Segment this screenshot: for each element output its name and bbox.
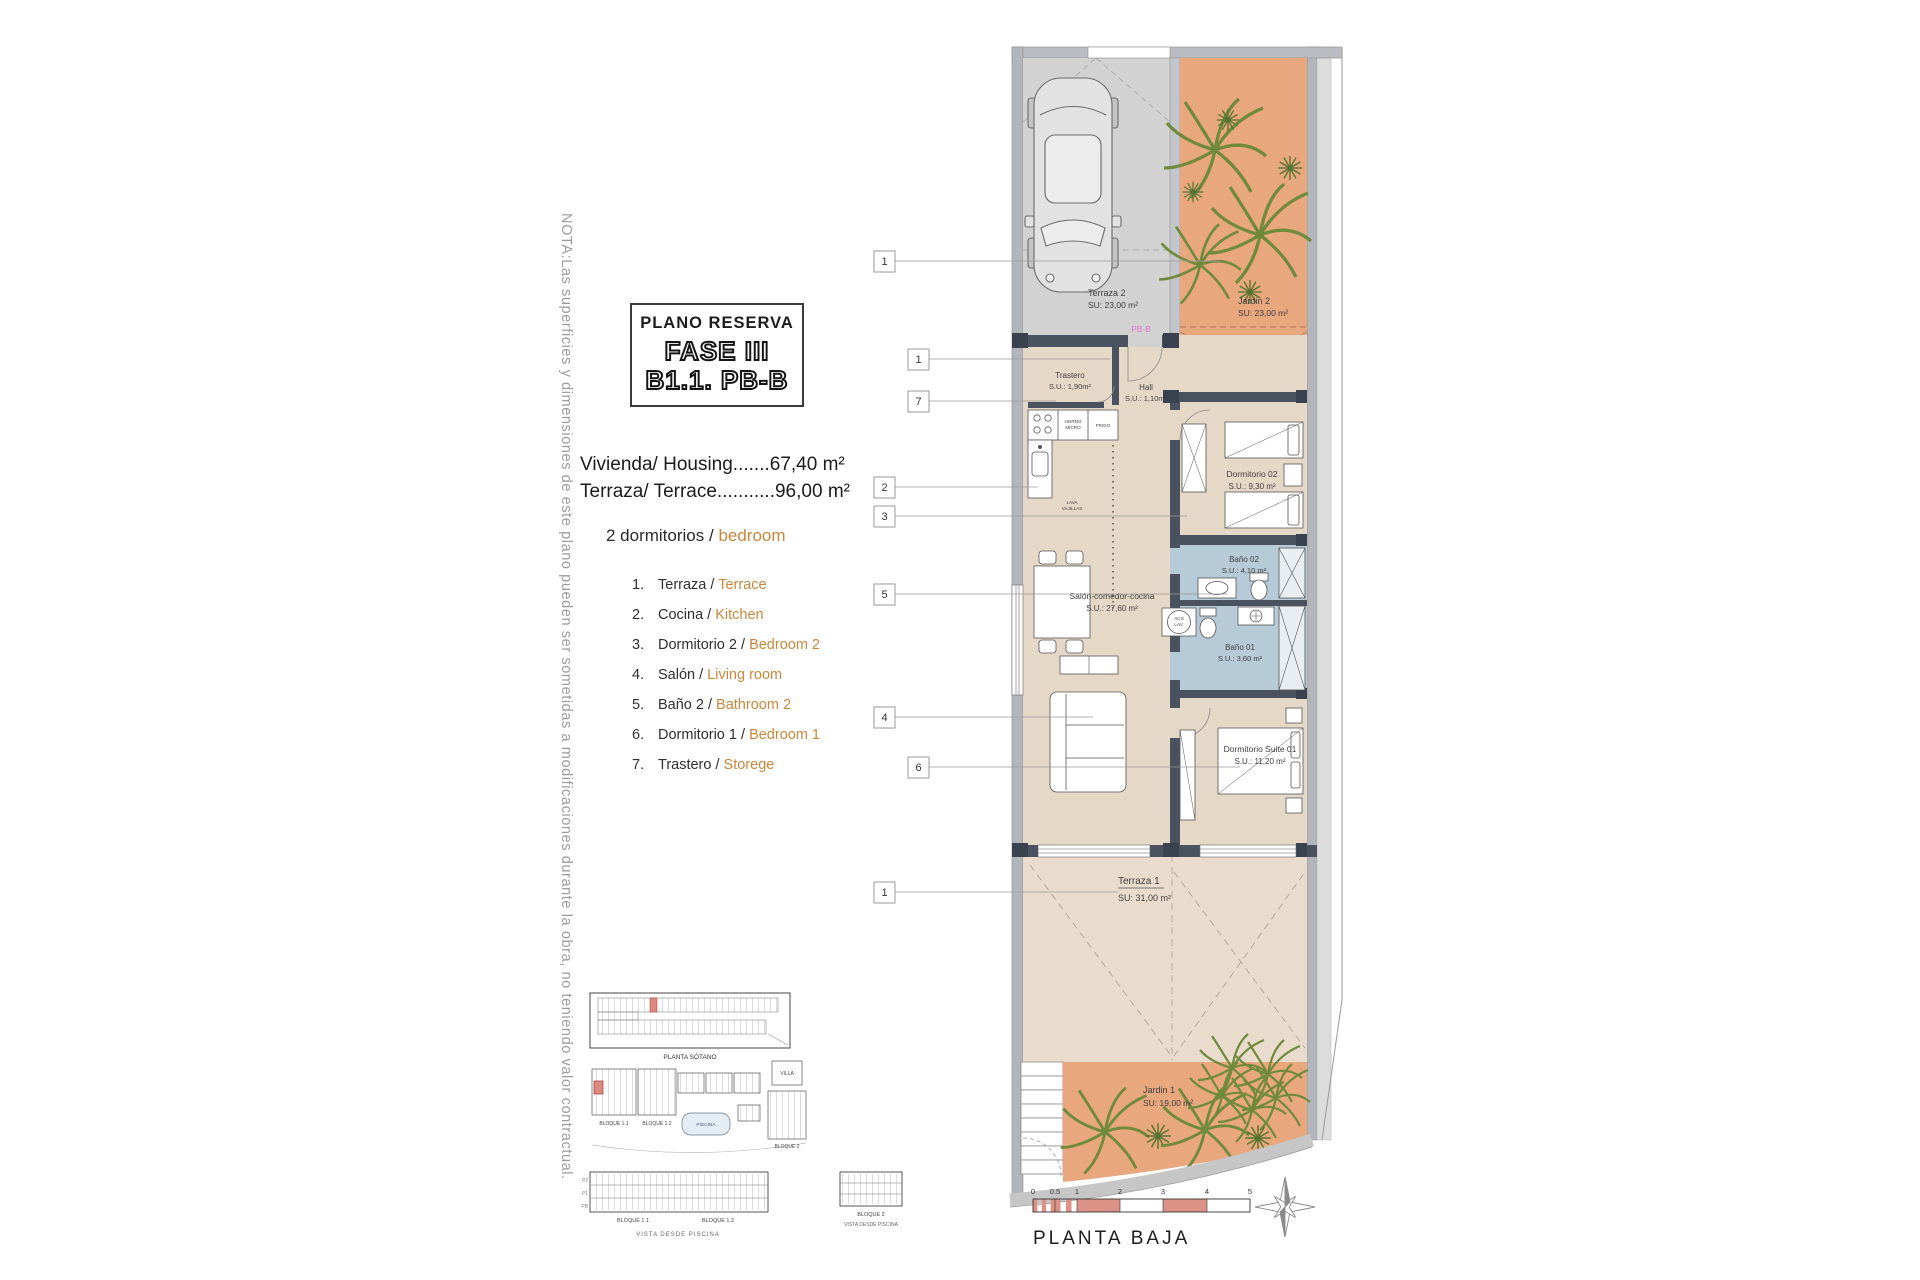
site-plan-diagram: VILLA PISCINA BLOQUE 1.1 BLOQUE 1.2 BLOQ… xyxy=(592,1061,806,1153)
legend-num: 4. xyxy=(632,660,658,690)
legend-es: Salón / xyxy=(658,667,707,683)
legend-en: Terrace xyxy=(718,577,766,593)
legend-en: Kitchen xyxy=(715,607,763,623)
salon-area: S.U.: 27,60 m² xyxy=(1086,604,1138,613)
scale-tick: 2 xyxy=(1118,1187,1122,1196)
scale-tick: 4 xyxy=(1205,1187,1209,1196)
bloque2-caption: BLOQUE 2 xyxy=(857,1212,885,1218)
elevation-right: BLOQUE 2 VISTA DESDE PISCINA xyxy=(840,1172,902,1228)
top-wall xyxy=(1012,47,1342,58)
terraza2-area: SU: 23,00 m² xyxy=(1088,300,1138,310)
tv-cabinet xyxy=(1060,656,1118,674)
bano02-label: Baño 02 xyxy=(1229,555,1259,564)
callout-4: 4 xyxy=(881,712,887,724)
site-diagrams: PLANTA SÓTANO VILLA PISCINA BLOQUE 1.1 B… xyxy=(578,985,922,1270)
right-wall xyxy=(1307,47,1317,1140)
callout-6: 6 xyxy=(915,762,921,774)
suite-area: S.U.: 11,20 m² xyxy=(1235,757,1286,766)
highlighted-unit xyxy=(594,1081,603,1094)
jardin1-label: Jardin 1 xyxy=(1143,1085,1175,1095)
legend-es: Baño 2 / xyxy=(658,697,716,713)
bedrooms-line: 2 dormitorios / bedroom xyxy=(606,526,786,546)
scale-tick: 5 xyxy=(1248,1187,1252,1196)
scale-tick: 1 xyxy=(1075,1187,1079,1196)
car-icon xyxy=(1025,78,1121,292)
legend-num: 3. xyxy=(632,630,658,660)
jardin2-label: Jardin 2 xyxy=(1238,296,1270,306)
highlighted-parking-spot xyxy=(650,998,657,1012)
legend-es: Cocina / xyxy=(658,607,715,623)
legend-en: Storege xyxy=(724,757,775,773)
vista-caption-2: VISTA DESDE PISCINA xyxy=(844,1222,898,1228)
legend-es: Trastero / xyxy=(658,757,724,773)
villa-label: VILLA xyxy=(780,1071,794,1077)
lava-label: LAVA xyxy=(1066,500,1078,505)
room-legend: 1.Terraza / Terrace 2.Cocina / Kitchen 3… xyxy=(632,570,820,780)
legend-es: Dormitorio 2 / xyxy=(658,637,749,653)
callout-3: 3 xyxy=(881,511,887,523)
terrace-area: Terraza/ Terrace...........96,00 m² xyxy=(580,478,850,505)
jardin1-area: SU: 19,00 m² xyxy=(1143,1098,1193,1108)
floor-label-pb: PB xyxy=(581,1204,588,1210)
disclaimer-note: NOTA:Las superficies y dimensiones de es… xyxy=(556,213,574,1113)
legend-item-cocina: 2.Cocina / Kitchen xyxy=(632,600,820,630)
trastero-area: S.U.: 1,90m² xyxy=(1049,382,1092,391)
area-summary: Vivienda/ Housing.......67,40 m² Terraza… xyxy=(580,451,850,505)
suite-label: Dormitorio Suite 01 xyxy=(1224,744,1297,754)
terraza1-label: Terraza 1 xyxy=(1118,876,1160,887)
stairs xyxy=(1021,1062,1063,1174)
callout-5: 5 xyxy=(881,589,887,601)
jardin2-area: SU: 23,00 m² xyxy=(1238,308,1288,318)
planta-sotano-diagram: PLANTA SÓTANO xyxy=(590,993,790,1061)
unit-code-tag: PB-B xyxy=(1131,324,1151,334)
bedrooms-en: bedroom xyxy=(718,526,785,545)
left-wall xyxy=(1012,47,1023,855)
lava-label2: VAJILLAS xyxy=(1062,506,1083,511)
legend-en: Bedroom 1 xyxy=(749,727,820,743)
dorm02-area: S.U.: 9,30 m² xyxy=(1228,482,1275,491)
terraza2-label: Terraza 2 xyxy=(1088,288,1126,298)
callout-1b: 1 xyxy=(915,354,921,366)
hall-label: Hall xyxy=(1139,383,1153,392)
phase-title: FASE III xyxy=(632,337,802,366)
legend-num: 2. xyxy=(632,600,658,630)
floor-label-p2: P2 xyxy=(582,1178,588,1184)
bloque11-caption: BLOQUE 1.1 xyxy=(617,1218,649,1224)
legend-num: 1. xyxy=(632,570,658,600)
plan-title: PLANO RESERVA xyxy=(632,314,802,333)
legend-en: Bathroom 2 xyxy=(716,697,791,713)
callout-1c: 1 xyxy=(881,887,887,899)
callout-1: 1 xyxy=(881,256,887,268)
vista-caption: VISTA DESDE PISCINA xyxy=(636,1232,720,1238)
hall-area: S.U.: 1,10m² xyxy=(1125,394,1168,403)
right-sidewalk xyxy=(1317,47,1331,1140)
terraza1-floor xyxy=(1023,855,1307,1062)
legend-en: Living room xyxy=(707,667,782,683)
acs-label: ACS xyxy=(1174,616,1184,622)
driveway-gate xyxy=(1088,47,1170,58)
dorm02-label: Dormitorio 02 xyxy=(1226,469,1277,479)
horno-label: HORNO xyxy=(1064,419,1082,424)
scale-tick: 0.5 xyxy=(1050,1187,1060,1196)
frigo-label: FRIGO xyxy=(1096,423,1111,428)
bedrooms-es: 2 dormitorios / xyxy=(606,526,718,545)
acs-closet: ACS LAV. xyxy=(1162,608,1196,636)
bano01-label: Baño 01 xyxy=(1225,643,1255,652)
dining-set xyxy=(1034,551,1090,653)
unit-code: B1.1. PB-B xyxy=(632,366,802,395)
scale-tick: 0 xyxy=(1031,1187,1035,1196)
piscina-label: PISCINA xyxy=(696,1122,716,1128)
planta-baja-caption: PLANTA BAJA xyxy=(1033,1228,1190,1249)
title-block: PLANO RESERVA FASE III B1.1. PB-B xyxy=(630,303,804,407)
bloque12-site-label: BLOQUE 1.2 xyxy=(642,1121,671,1127)
terraza1-area: SU: 31,00 m² xyxy=(1118,893,1171,903)
callout-7: 7 xyxy=(915,396,921,408)
floor-label-p1: P1 xyxy=(582,1191,588,1197)
legend-es: Terraza / xyxy=(658,577,718,593)
callout-2: 2 xyxy=(881,482,887,494)
legend-item-salon: 4.Salón / Living room xyxy=(632,660,820,690)
acs-label2: LAV. xyxy=(1174,622,1184,628)
legend-item-dormitorio1: 6.Dormitorio 1 / Bedroom 1 xyxy=(632,720,820,750)
scale-tick: 3 xyxy=(1161,1187,1165,1196)
elevation-left: P2 P1 PB BLOQUE 1.1 BLOQUE 1.2 VISTA DES… xyxy=(581,1172,768,1238)
legend-en: Bedroom 2 xyxy=(749,637,820,653)
horno-label2: MICRO xyxy=(1065,425,1081,430)
legend-item-bano2: 5.Baño 2 / Bathroom 2 xyxy=(632,690,820,720)
bano02-area: S.U.: 4,10 m² xyxy=(1222,566,1267,575)
compass-icon xyxy=(1255,1177,1315,1237)
salon-label: Salón-comedor-cocina xyxy=(1069,591,1154,601)
floor-plan: ACS LAV. Terraza 2 SU xyxy=(860,40,1360,1270)
trastero-label: Trastero xyxy=(1055,371,1085,380)
legend-item-dormitorio2: 3.Dormitorio 2 / Bedroom 2 xyxy=(632,630,820,660)
bloque11-site-label: BLOQUE 1.1 xyxy=(599,1121,628,1127)
legend-item-trastero: 7.Trastero / Storege xyxy=(632,750,820,780)
legend-es: Dormitorio 1 / xyxy=(658,727,749,743)
sotano-caption: PLANTA SÓTANO xyxy=(663,1052,716,1061)
sofa xyxy=(1050,692,1126,792)
legend-num: 7. xyxy=(632,750,658,780)
bloque12-caption: BLOQUE 1.2 xyxy=(702,1218,734,1224)
legend-num: 5. xyxy=(632,690,658,720)
bano01-area: S.U.: 3,60 m² xyxy=(1218,654,1263,663)
legend-item-terraza: 1.Terraza / Terrace xyxy=(632,570,820,600)
bloque2-site-label: BLOQUE 2 xyxy=(774,1144,799,1150)
housing-area: Vivienda/ Housing.......67,40 m² xyxy=(580,451,850,478)
legend-num: 6. xyxy=(632,720,658,750)
